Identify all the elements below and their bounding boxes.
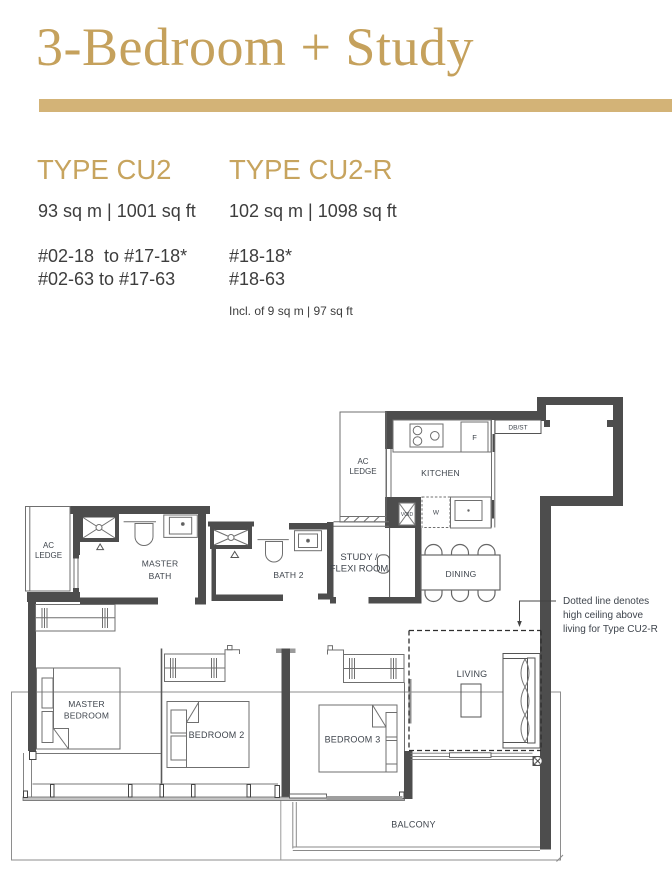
svg-text:AC: AC bbox=[357, 457, 368, 466]
svg-text:DB/ST: DB/ST bbox=[508, 425, 527, 432]
svg-text:AC: AC bbox=[43, 541, 54, 550]
svg-text:BEDROOM: BEDROOM bbox=[64, 711, 109, 721]
svg-text:STUDY /: STUDY / bbox=[340, 552, 378, 563]
svg-text:LEDGE: LEDGE bbox=[35, 551, 62, 560]
svg-text:DINING: DINING bbox=[446, 569, 477, 579]
svg-text:Dotted line denotes: Dotted line denotes bbox=[563, 596, 649, 607]
svg-text:MASTER: MASTER bbox=[68, 699, 105, 709]
svg-text:LIVING: LIVING bbox=[457, 669, 488, 679]
svg-text:LEDGE: LEDGE bbox=[349, 467, 376, 476]
svg-text:BEDROOM 2: BEDROOM 2 bbox=[189, 730, 245, 740]
svg-text:living for Type CU2-R: living for Type CU2-R bbox=[563, 624, 658, 635]
svg-text:BALCONY: BALCONY bbox=[391, 820, 435, 830]
svg-text:BATH 2: BATH 2 bbox=[273, 570, 303, 580]
svg-text:BATH: BATH bbox=[149, 571, 172, 581]
svg-text:FLEXI ROOM: FLEXI ROOM bbox=[330, 564, 389, 575]
svg-text:BEDROOM 3: BEDROOM 3 bbox=[325, 734, 381, 744]
svg-text:KITCHEN: KITCHEN bbox=[421, 468, 460, 478]
svg-text:F: F bbox=[472, 433, 477, 442]
svg-text:VOID: VOID bbox=[401, 512, 414, 518]
svg-text:high ceiling above: high ceiling above bbox=[563, 610, 643, 621]
svg-text:MASTER: MASTER bbox=[142, 559, 179, 569]
svg-text:W: W bbox=[433, 510, 440, 517]
